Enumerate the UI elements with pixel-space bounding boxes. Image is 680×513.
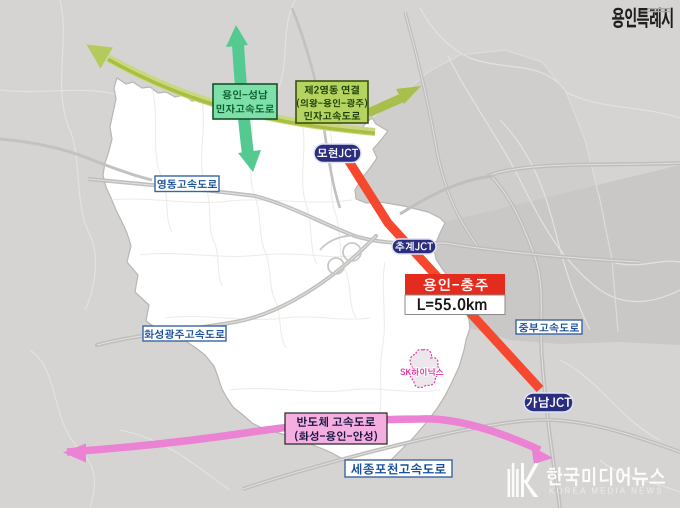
svg-text:KOREA MEDIA NEWS: KOREA MEDIA NEWS [549, 487, 664, 496]
